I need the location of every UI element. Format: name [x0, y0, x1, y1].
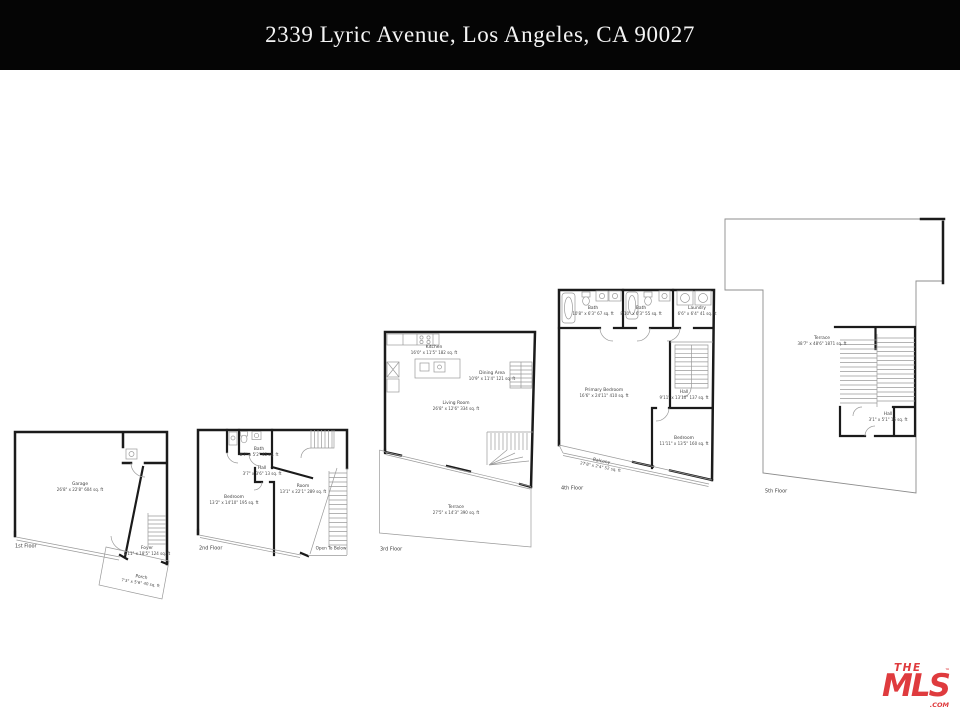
room-dims: 27'5" x 14'3" 390 sq. ft	[433, 510, 479, 515]
laundry-fixtures	[677, 291, 711, 305]
room-dims: 13'1" x 22'1" 289 sq. ft	[280, 489, 326, 494]
room-dims: 6'11" x 18'5" 124 sq. ft	[124, 551, 170, 556]
stairs-icon	[670, 342, 713, 388]
room-label-garage: Garage 26'8" x 22'8" 604 sq. ft	[57, 481, 103, 492]
window-wall-line	[385, 452, 531, 489]
stairs-icon	[840, 334, 915, 407]
room-label-kitchen: Kitchen 16'0" x 11'5" 182 sq. ft	[411, 344, 457, 355]
room-dims: 6'6" x 6'4" 41 sq. ft	[678, 311, 717, 316]
kitchen-fixtures	[387, 334, 460, 392]
room-label-room-2nd: Room 13'1" x 22'1" 289 sq. ft	[280, 483, 326, 494]
floor-label-5th: 5th Floor	[765, 488, 787, 494]
bath-fixtures	[229, 432, 261, 446]
floor-plan-drawing-1st	[10, 425, 190, 610]
room-dims: 3'7" x 3'6" 13 sq. ft	[243, 471, 282, 476]
room-label-terrace-3rd: Terrace 27'5" x 14'3" 390 sq. ft	[433, 504, 479, 515]
room-dims: 26'8" x 12'6" 334 sq. ft	[433, 406, 479, 411]
room-label-terrace-5th: Terrace 38'7" x 48'6" 1871 sq. ft	[797, 335, 846, 346]
room-label-bath2-4th: Bath 8'10" x 6'3" 55 sq. ft	[620, 305, 661, 316]
logo-com-text: .COM	[930, 701, 949, 709]
floor-label-1st: 1st Floor	[15, 543, 37, 549]
room-name: Primary Bedroom	[579, 387, 628, 393]
room-label-hall-5th: Hall 3'1" x 5'1" 16 sq. ft	[869, 411, 908, 422]
room-dims: 38'7" x 48'6" 1871 sq. ft	[797, 341, 846, 346]
room-dims: 8'7" x 5'2" 45 sq. ft	[240, 452, 279, 457]
room-label-laundry: Laundry 6'6" x 6'4" 41 sq. ft	[678, 305, 717, 316]
floor-label-4th: 4th Floor	[561, 485, 583, 491]
room-dims: 10'9" x 11'4" 121 sq. ft	[469, 376, 515, 381]
room-dims: 16'6" x 24'11" 410 sq. ft	[579, 393, 628, 398]
terrace-outline	[380, 450, 532, 547]
open-to-below-outline	[308, 468, 347, 556]
room-dims: 26'8" x 22'8" 604 sq. ft	[57, 487, 103, 492]
room-label-bedroom-4th: Bedroom 11'11" x 13'5" 160 sq. ft	[659, 435, 708, 446]
room-dims: 9'11" x 13'10" 137 sq. ft	[659, 395, 708, 400]
floor-label-3rd: 3rd Floor	[380, 546, 402, 552]
stairs-icon	[148, 513, 166, 547]
room-label-bedroom-2nd: Bedroom 13'2" x 14'10" 195 sq. ft	[209, 494, 258, 505]
room-dims: 16'0" x 11'5" 182 sq. ft	[411, 350, 457, 355]
walls	[835, 219, 944, 436]
page-title: 2339 Lyric Avenue, Los Angeles, CA 90027	[265, 22, 695, 48]
floor-label-2nd: 2nd Floor	[199, 545, 222, 551]
mls-logo: THE ™ MLS .COM	[881, 661, 951, 711]
room-label-bath1-4th: Bath 10'8" x 6'3" 67 sq. ft	[572, 305, 613, 316]
room-dims: 3'1" x 5'1" 16 sq. ft	[869, 417, 908, 422]
room-label-hall-2nd: Hall 3'7" x 3'6" 13 sq. ft	[243, 465, 282, 476]
header-bar: 2339 Lyric Avenue, Los Angeles, CA 90027	[0, 0, 960, 70]
room-dims: 10'8" x 6'3" 67 sq. ft	[572, 311, 613, 316]
open-to-below-label: Open To Below	[316, 546, 347, 551]
room-label-bath-2nd: Bath 8'7" x 5'2" 45 sq. ft	[240, 446, 279, 457]
floor-plan-drawing-5th	[722, 210, 954, 502]
room-label-foyer: Foyer 6'11" x 18'5" 124 sq. ft	[124, 545, 170, 556]
floor-plan-sheet: 2339 Lyric Avenue, Los Angeles, CA 90027	[0, 0, 960, 720]
room-label-dining-area: Dining Area 10'9" x 11'4" 121 sq. ft	[469, 370, 515, 381]
closet-fixture	[126, 449, 137, 459]
floor-plan-drawing-3rd	[377, 322, 537, 568]
room-label-hall-4th: Hall 9'11" x 13'10" 137 sq. ft	[659, 389, 708, 400]
room-dims: 13'2" x 14'10" 195 sq. ft	[209, 500, 258, 505]
room-dims: 8'10" x 6'3" 55 sq. ft	[620, 311, 661, 316]
room-label-living-room: Living Room 26'8" x 12'6" 334 sq. ft	[433, 400, 479, 411]
room-label-primary-bedroom: Primary Bedroom 16'6" x 24'11" 410 sq. f…	[579, 387, 628, 398]
room-dims: 11'11" x 13'5" 160 sq. ft	[659, 441, 708, 446]
logo-mls-text: MLS	[882, 668, 949, 704]
